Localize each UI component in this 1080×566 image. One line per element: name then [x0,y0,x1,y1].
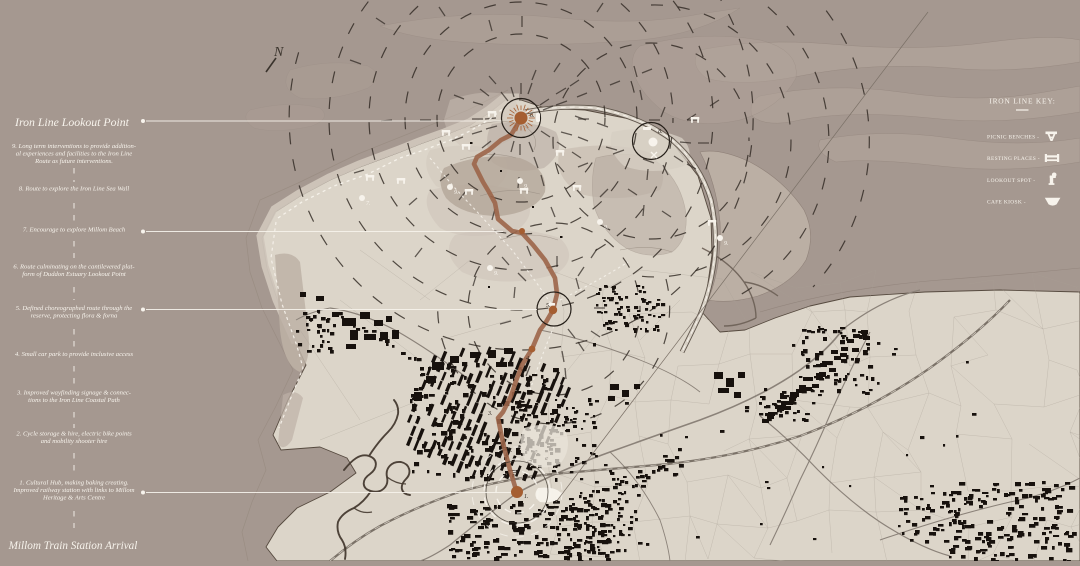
svg-text:form of Duddon Estuary Lookou: form of Duddon Estuary Lookout Point [22,271,126,278]
svg-text:Heritage & Arts Centre: Heritage & Arts Centre [42,495,105,502]
svg-text:3. Improved wayfinding signag: 3. Improved wayfinding signage & connec- [16,390,131,397]
svg-text:2. Cycle storage & hire, elec: 2. Cycle storage & hire, electric bike p… [16,431,132,438]
svg-text:5. Defined choreographed rout: 5. Defined choreographed route through t… [16,305,133,312]
svg-text:al experiences and facilities: al experiences and facilities to the Iro… [16,151,132,158]
svg-text:2.: 2. [508,448,513,454]
svg-text:reserve, protecting flora & fo: reserve, protecting flora & forna [31,313,118,320]
svg-text:9.: 9. [604,225,609,231]
svg-text:9.: 9. [494,271,499,277]
svg-text:4. Small car park to provide: 4. Small car park to provide inclusive a… [15,351,133,358]
svg-text:N: N [273,45,284,60]
svg-text:and mobility shooter hire: and mobility shooter hire [41,438,108,445]
svg-text:1. Cultural Hub, making bakin: 1. Cultural Hub, making baking creating. [19,480,129,487]
svg-text:9.: 9. [454,190,459,196]
svg-text:Iron Line Lookout Point: Iron Line Lookout Point [14,115,130,129]
svg-text:9. Long term interventions to: 9. Long term interventions to provide ad… [12,143,136,150]
svg-text:9.: 9. [724,241,729,247]
svg-text:8.: 8. [658,129,663,135]
svg-text:7.: 7. [366,201,371,207]
svg-text:IRON LINE KEY:: IRON LINE KEY: [989,97,1055,106]
svg-text:6.: 6. [530,113,535,119]
svg-text:9.: 9. [524,184,529,190]
svg-text:3.: 3. [487,411,493,417]
svg-text:8. Route to explore the Iron: 8. Route to explore the Iron Line Sea Wa… [19,186,130,193]
svg-text:4.: 4. [526,355,531,362]
svg-text:Route as future interventions.: Route as future interventions. [34,158,113,165]
svg-text:LOOKOUT SPOT -: LOOKOUT SPOT - [987,178,1035,184]
svg-text:7. Encourage to explore Millo: 7. Encourage to explore Millom Beach [23,227,126,234]
svg-text:5.: 5. [546,303,551,309]
svg-text:Millom Train Station Arrival: Millom Train Station Arrival [8,540,138,552]
svg-text:tions to the Iron Line Coastal: tions to the Iron Line Coastal Path [28,397,120,404]
svg-text:Improved railway station with: Improved railway station with links to M… [12,487,134,494]
svg-text:PICNIC BENCHES -: PICNIC BENCHES - [987,135,1039,141]
svg-text:RESTING PLACES -: RESTING PLACES - [987,156,1040,162]
svg-text:1.: 1. [524,494,529,500]
svg-text:6. Route culminating on the c: 6. Route culminating on the cantilevered… [13,264,134,271]
svg-text:CAFE KIOSK -: CAFE KIOSK - [987,200,1026,206]
